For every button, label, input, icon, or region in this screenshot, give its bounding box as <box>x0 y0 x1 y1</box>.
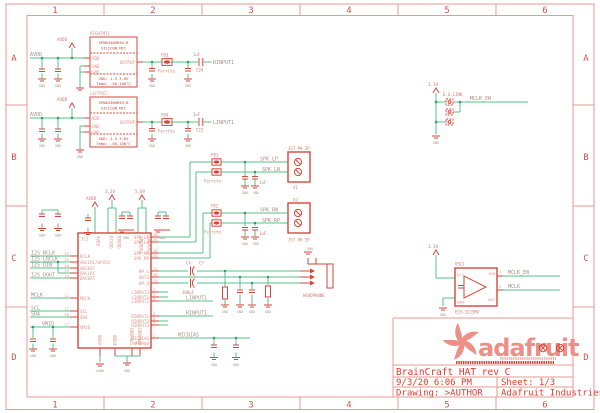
ic-pin: RINPUT3 <box>131 323 149 328</box>
mclk-jumper: 3.3V E.G.LINK GND MCLK_EN <box>428 82 528 145</box>
mic-pin: VDD <box>92 116 100 121</box>
ic-pin: AGND <box>98 334 103 345</box>
osc-pin: OUT <box>488 297 496 302</box>
gnd-label: GND <box>222 310 229 314</box>
ic-pin: DCVDD <box>109 236 114 249</box>
gnd-label: GND <box>39 84 46 88</box>
mic-pin: OUTPUT <box>120 120 136 125</box>
net-label-spk-ln: SPK_LN <box>262 167 280 173</box>
gnd-label: GND <box>253 191 260 195</box>
connector-part: JST PH 2P <box>288 238 310 243</box>
mic-designator: LEFTMIC <box>90 91 108 96</box>
speaker-outputs: FB1 Ferrite FB2 Ferrite GND GND GND GND … <box>159 146 310 258</box>
connector-designator: X1 <box>293 185 298 190</box>
gnd-label: GND <box>55 84 62 88</box>
gnd-label: GND <box>39 234 46 238</box>
ic-pin: DGND <box>113 334 118 345</box>
ferrite-designator: FB2 <box>211 204 219 209</box>
ic-pin-num: 23 <box>153 278 158 283</box>
gnd-label: GND <box>30 354 37 358</box>
ic-pin-num: 12 <box>64 251 69 256</box>
cap-value: 1uF <box>259 231 267 236</box>
osc-pin: INH <box>488 271 496 276</box>
gnd-label: GND <box>233 363 240 367</box>
gnd-label: GND <box>55 234 62 238</box>
gnd-label: GND <box>253 242 260 246</box>
ic-pin-num: 14 <box>64 273 69 278</box>
ic-pin-num: 1 <box>153 333 156 338</box>
gnd-label: GND <box>249 310 256 314</box>
power-label-33v: 3.3V <box>428 82 439 87</box>
net-label-mclk-en: MCLK_EN <box>470 96 491 102</box>
connector-designator: X2 <box>293 198 298 203</box>
ic-pin: HP_L <box>139 269 150 274</box>
power-label-avdd: AVDD <box>57 97 68 102</box>
ic-pin-num: 21 <box>153 266 158 271</box>
input-nets: LINPUT1 RINPUT1 MICBIAS GND GND <box>159 292 250 367</box>
net-label-i2s-din: I2S_DIN <box>31 263 52 269</box>
net-label-mclk: MCLK <box>31 293 43 299</box>
mic-pin: GND <box>92 64 100 69</box>
osc-pin: GND <box>457 300 465 305</box>
ic-pin-num: 20 <box>153 272 158 277</box>
mic-part: SILICON MIC <box>101 106 126 111</box>
mic-pin: OUTPUT <box>120 60 136 65</box>
ferrite-value: Ferrite <box>204 179 221 184</box>
gnd-label: GND <box>185 144 192 148</box>
jumper-label: E.G.LINK <box>443 92 463 97</box>
ic-pin: OUT3 <box>139 275 150 280</box>
doc-date: 9/3/20 6:06 PM <box>396 378 472 388</box>
gnd-label: GND <box>265 310 272 314</box>
doc-sheet: Sheet: 1/3 <box>501 378 555 388</box>
cap-designator: C23 <box>196 128 204 133</box>
ferrite-value: Ferrite <box>158 69 175 74</box>
ferrite-value: Ferrite <box>158 129 175 134</box>
ic-pin-num: 27 <box>64 322 69 327</box>
power-label-33v: 3.3V <box>105 189 116 194</box>
schematic-page: 1 2 3 4 5 6 1 2 3 4 5 6 A B C D A B C D … <box>0 0 600 413</box>
col-label: 4 <box>346 6 351 16</box>
logo-block: adafruit <box>393 318 579 365</box>
ic-pin: ADCLRC/GPIO1 <box>80 260 111 265</box>
cap-designator: C24 <box>196 68 204 73</box>
col-label: 6 <box>542 6 547 16</box>
ic-pin-num: 25 <box>153 237 158 242</box>
cap-value: 1uF <box>259 180 267 185</box>
osc-pin-num: 3 <box>499 284 501 289</box>
gnd-label: GND <box>440 313 447 317</box>
net-label-spk-rp: SPK_RP <box>262 218 280 224</box>
ic-pin: MICBIAS <box>131 336 149 341</box>
codec-ic: IC3 WM8960 BCLK ADCLRC/GPIO1 ADCDAT DACL… <box>64 232 159 373</box>
ic-pin-num: 18 <box>64 312 69 317</box>
cap-value: 1uF <box>193 112 201 117</box>
ic-pin: SDA <box>80 315 88 320</box>
power-label-avdd: AVDD <box>57 37 68 42</box>
headphone-label: HEADPHONE <box>303 293 325 298</box>
doc-company: Adafruit Industries <box>501 389 600 399</box>
gnd-label: GND <box>39 144 46 148</box>
adafruit-flower-logo <box>442 323 480 361</box>
right-mic-circuit: RIGHTMIC SPW0430HR5H-B SILICON MIC VDD: … <box>30 31 234 90</box>
net-label-spk-rn: SPK_RN <box>260 208 278 214</box>
ic-pin-num: 22 <box>153 253 158 258</box>
ic-pin: SPK_LN <box>134 240 150 245</box>
row-label: C <box>583 254 588 264</box>
row-label: A <box>583 54 589 64</box>
col-label: 6 <box>542 401 547 411</box>
gnd-label: GND <box>77 155 84 159</box>
net-label-mclk: MCLK <box>508 284 520 290</box>
row-label: D <box>583 353 588 363</box>
net-label-avdd: AVDD <box>30 112 42 118</box>
gnd-label: GND <box>307 247 314 251</box>
ic-pin: SPK_RP <box>134 256 150 261</box>
ferrite-designator: FB3 <box>161 53 169 58</box>
gnd-label: GND <box>124 369 131 373</box>
col-label: 5 <box>444 401 449 411</box>
net-label-rinput1: RINPUT1 <box>186 311 207 317</box>
power-label-avdd: AVDD <box>86 196 97 201</box>
net-label-mclk-en: MCLK_EN <box>508 270 529 276</box>
osc-designator: OSC1 <box>455 262 465 267</box>
col-label: 3 <box>248 401 253 411</box>
ferrite-value: Ferrite <box>204 230 221 235</box>
col-label: 3 <box>248 6 253 16</box>
mic-pin: GND <box>92 124 100 129</box>
headphone-circuit: C4 100uF C7 GND GND GND GND GND HEADPHON… <box>159 247 333 314</box>
gnd-label: GND <box>237 310 244 314</box>
mic-pin: VDD <box>92 56 100 61</box>
mic-note: Temp: -40-100°C <box>96 81 130 86</box>
gnd-label: GND <box>433 141 440 145</box>
gnd-label: GND <box>149 144 156 148</box>
row-label: D <box>11 353 16 363</box>
mic-part: SPW0430HR5H-B <box>99 40 129 45</box>
mic-part: SPW0430HR5H-B <box>99 100 129 105</box>
ic-pin-num: 17 <box>64 306 69 311</box>
mic-part: SILICON MIC <box>101 46 126 51</box>
gnd-label: GND <box>185 84 192 88</box>
power-label-33v: 3.3V <box>428 244 439 249</box>
gnd-label: GND <box>55 144 62 148</box>
gnd-label: GND <box>50 354 57 358</box>
net-label-linput1: LINPUT1 <box>213 120 234 126</box>
ic-pin: DBVDD <box>117 236 122 249</box>
col-label: 2 <box>150 401 155 411</box>
doc-title: BrainCraft HAT rev C <box>396 367 510 378</box>
mic-pin: GND <box>92 130 100 135</box>
osc-pin: VCC <box>457 272 464 277</box>
ferrite-designator: FB1 <box>211 153 219 158</box>
agnd-label: AGND <box>96 369 105 373</box>
ferrite-designator: FB4 <box>161 113 169 118</box>
net-label-sda: SDA <box>31 312 40 318</box>
gnd-label: GND <box>123 236 130 240</box>
ic-pin: MCLK <box>80 296 91 301</box>
ic-pin-num: 11 <box>64 293 69 298</box>
osc-pin-num: 1 <box>499 270 502 275</box>
col-label: 2 <box>150 6 155 16</box>
gnd-label: GND <box>149 84 156 88</box>
ic-pin: AVDD <box>96 236 101 247</box>
col-label: 1 <box>52 401 57 411</box>
ic-designator: IC3 <box>81 237 89 242</box>
row-label: B <box>583 153 588 163</box>
gnd-label: GND <box>211 363 218 367</box>
ic-pin: DACDAT <box>80 276 96 281</box>
ic-pin-num: 15 <box>64 257 69 262</box>
mic-designator: RIGHTMIC <box>90 31 111 36</box>
ic-pin: SCL <box>80 309 88 314</box>
ic-pin-num: 7 <box>153 320 155 325</box>
cap-value: 1uF <box>193 52 201 57</box>
net-label-avdd: AVDD <box>30 52 42 58</box>
net-label-vmid: VMID <box>42 322 54 328</box>
ic-pin: LINPUT1 <box>131 299 149 304</box>
net-label-linput1: LINPUT1 <box>186 296 207 302</box>
connector-part: JST PH 2P <box>288 146 310 151</box>
cap-designator: C4 <box>186 261 191 266</box>
col-label: 4 <box>346 401 351 411</box>
ic-pin: HP_R <box>139 281 150 286</box>
net-label-spk-lp: SPK_LP <box>260 157 278 163</box>
power-label-50v: 5.0V <box>135 189 146 194</box>
osc-part: ECS-3225MV <box>455 310 480 315</box>
cap-designator: C7 <box>199 261 204 266</box>
row-label: A <box>11 54 17 64</box>
oscillator-circuit: 3.3V GND OSC1 VCC GND INH OUT ECS-3225MV… <box>428 244 560 317</box>
ic-pin: BCLK <box>80 254 91 259</box>
gnd-label: GND <box>242 191 249 195</box>
col-label: 5 <box>444 6 449 16</box>
cap-value: 100uF <box>182 290 195 295</box>
row-label: C <box>11 254 16 264</box>
net-label-i2s-dout: I2S_DOUT <box>31 273 55 279</box>
net-label-micbias: MICBIAS <box>178 333 199 339</box>
doc-drawing: Drawing: >AUTHOR <box>396 389 483 399</box>
mic-note: Temp: -40-100°C <box>96 141 130 146</box>
gnd-label: GND <box>242 242 249 246</box>
net-label-rinput1: RINPUT1 <box>213 60 234 66</box>
row-label: B <box>11 153 16 163</box>
left-mic-circuit: LEFTMIC SPW0430HR5H-B SILICON MIC VDD: 1… <box>30 91 234 159</box>
title-block: BrainCraft HAT rev C 9/3/20 6:06 PM Shee… <box>393 363 600 399</box>
col-label: 1 <box>52 6 57 16</box>
ic-pin: VMID <box>80 325 91 330</box>
mic-pin: GND <box>92 70 100 75</box>
